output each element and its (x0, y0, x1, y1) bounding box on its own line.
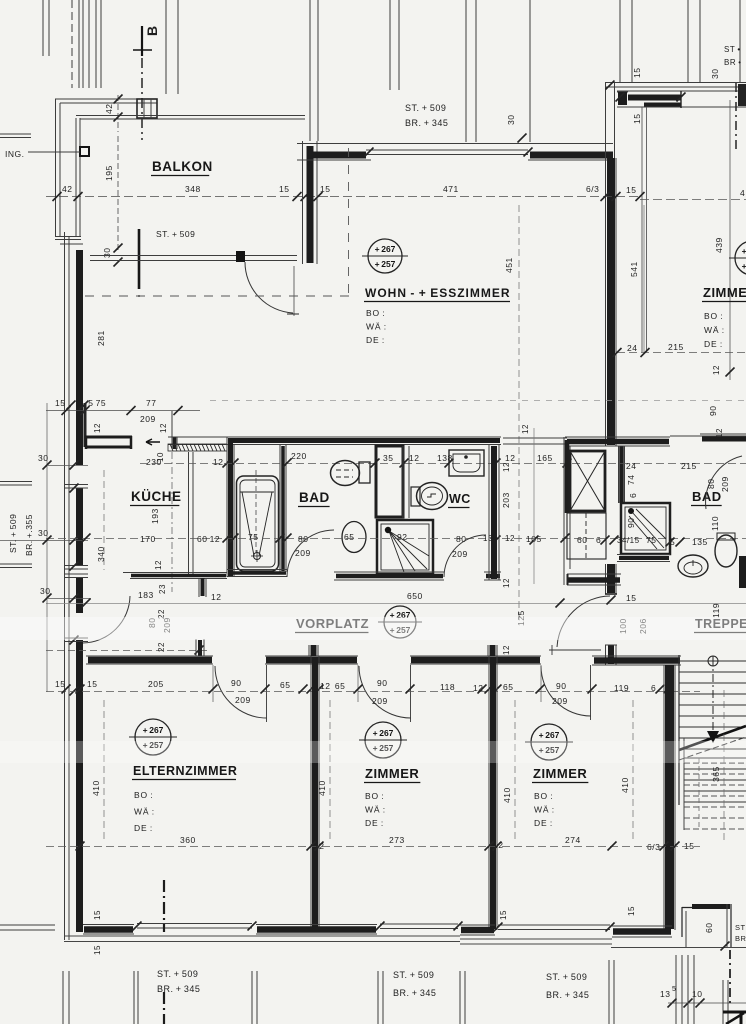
svg-text:209: 209 (552, 696, 568, 706)
svg-text:12: 12 (502, 578, 511, 588)
svg-text:119: 119 (711, 603, 721, 618)
svg-text:365: 365 (711, 766, 721, 782)
svg-text:90: 90 (377, 678, 387, 688)
svg-text:15: 15 (320, 184, 330, 194)
svg-text:BR •: BR • (724, 58, 742, 67)
svg-text:+ 257: + 257 (375, 259, 396, 269)
svg-text:12: 12 (213, 457, 223, 467)
svg-text:15: 15 (626, 593, 636, 603)
svg-text:+ 267: + 267 (539, 730, 560, 740)
svg-text:12: 12 (715, 428, 724, 438)
svg-text:209: 209 (235, 695, 251, 705)
svg-text:BR: BR (735, 934, 746, 943)
svg-text:15: 15 (93, 910, 102, 920)
svg-text:ELTERNZIMMER: ELTERNZIMMER (133, 764, 237, 778)
svg-text:6/3: 6/3 (586, 184, 599, 194)
svg-text:BR. + 345: BR. + 345 (393, 988, 436, 998)
svg-text:340: 340 (96, 546, 106, 562)
svg-text:B: B (144, 25, 160, 36)
svg-text:ST. + 509: ST. + 509 (405, 103, 446, 113)
svg-text:60: 60 (704, 923, 714, 933)
svg-text:165: 165 (537, 453, 553, 463)
svg-text:12: 12 (211, 592, 221, 602)
svg-text:274: 274 (565, 835, 581, 845)
svg-text:4: 4 (740, 188, 745, 198)
svg-text:77: 77 (146, 398, 156, 408)
svg-text:90: 90 (231, 678, 241, 688)
svg-text:135: 135 (692, 537, 708, 547)
svg-text:BR. + 345: BR. + 345 (157, 984, 200, 994)
svg-text:+ 267: + 267 (375, 244, 396, 254)
svg-text:15: 15 (632, 114, 642, 124)
svg-text:ING.: ING. (5, 149, 24, 159)
svg-text:209: 209 (140, 414, 156, 424)
svg-text:183: 183 (138, 590, 154, 600)
svg-text:15: 15 (499, 910, 508, 920)
svg-text:650: 650 (407, 591, 423, 601)
svg-text:42: 42 (104, 104, 114, 114)
svg-text:80: 80 (706, 479, 716, 489)
svg-text:205: 205 (148, 679, 164, 689)
svg-text:30: 30 (506, 115, 516, 125)
svg-text:170: 170 (140, 534, 156, 544)
svg-text:15: 15 (626, 185, 636, 195)
svg-text:BAD: BAD (299, 490, 330, 505)
svg-text:541: 541 (629, 261, 639, 277)
svg-text:209: 209 (295, 548, 311, 558)
svg-text:DE :: DE : (134, 823, 153, 833)
svg-text:220: 220 (291, 451, 307, 461)
svg-text:348: 348 (185, 184, 201, 194)
svg-text:12: 12 (521, 424, 530, 434)
svg-text:12: 12 (712, 365, 721, 375)
svg-text:209: 209 (720, 476, 730, 492)
svg-text:12: 12 (502, 645, 511, 655)
svg-text:12 65: 12 65 (320, 681, 345, 691)
svg-text:+ 267: + 267 (143, 725, 164, 735)
svg-text:90: 90 (556, 681, 566, 691)
svg-text:65: 65 (344, 532, 354, 542)
svg-text:110: 110 (710, 516, 720, 531)
svg-text:ZIMMER: ZIMMER (533, 766, 587, 781)
svg-text:119: 119 (614, 683, 629, 693)
svg-text:410: 410 (502, 787, 512, 803)
svg-text:30: 30 (40, 586, 50, 596)
svg-text:BR. + 345: BR. + 345 (546, 990, 589, 1000)
svg-text:12: 12 (93, 423, 102, 433)
svg-text:75: 75 (646, 535, 656, 545)
svg-text:34/15: 34/15 (617, 536, 640, 545)
svg-text:ZIMMER: ZIMMER (703, 285, 746, 300)
svg-text:ST •: ST • (724, 45, 741, 54)
svg-text:12: 12 (159, 423, 168, 433)
svg-text:WÄ :: WÄ : (366, 322, 387, 332)
svg-text:60: 60 (577, 535, 587, 545)
svg-text:273: 273 (389, 835, 405, 845)
svg-text:+ 267: + 267 (742, 246, 746, 256)
svg-text:DE :: DE : (704, 339, 723, 349)
svg-text:WC: WC (449, 492, 471, 506)
svg-text:451: 451 (504, 257, 514, 273)
svg-text:6: 6 (651, 683, 656, 693)
svg-text:15: 15 (632, 68, 642, 78)
svg-text:410: 410 (317, 780, 327, 796)
svg-text:22: 22 (157, 642, 166, 652)
svg-text:6/3: 6/3 (647, 842, 660, 852)
svg-text:24: 24 (627, 343, 637, 353)
svg-text:65: 65 (503, 682, 513, 692)
svg-text:439: 439 (714, 237, 724, 253)
svg-text:DE :: DE : (365, 818, 384, 828)
svg-text:DE :: DE : (366, 335, 385, 345)
svg-text:5: 5 (672, 986, 676, 993)
svg-text:118: 118 (440, 682, 455, 692)
svg-text:WÄ :: WÄ : (704, 325, 725, 335)
svg-text:15: 15 (93, 945, 102, 955)
svg-text:BO :: BO : (534, 791, 554, 801)
svg-text:75: 75 (248, 532, 258, 542)
svg-text:193: 193 (150, 508, 160, 524)
svg-text:42: 42 (62, 184, 72, 194)
svg-text:30: 30 (38, 528, 48, 538)
svg-text:ST. + 509: ST. + 509 (156, 229, 195, 239)
svg-text:90: 90 (708, 406, 718, 416)
svg-text:410: 410 (620, 777, 630, 793)
svg-text:15: 15 (55, 679, 65, 689)
svg-text:ST. + 509: ST. + 509 (8, 514, 18, 553)
svg-text:35: 35 (383, 453, 393, 463)
svg-text:215: 215 (668, 342, 684, 352)
svg-text:30: 30 (710, 69, 720, 79)
svg-text:KÜCHE: KÜCHE (131, 489, 182, 504)
svg-text:281: 281 (96, 330, 106, 346)
svg-text:209: 209 (452, 549, 468, 559)
svg-text:WÄ :: WÄ : (534, 805, 555, 815)
svg-text:ST. + 509: ST. + 509 (157, 969, 198, 979)
svg-text:BO :: BO : (704, 311, 724, 321)
svg-text:WOHN - + ESSZIMMER: WOHN - + ESSZIMMER (365, 286, 511, 300)
svg-text:ST. + 509: ST. + 509 (546, 972, 587, 982)
svg-text:30: 30 (38, 453, 48, 463)
svg-text:BO :: BO : (365, 791, 385, 801)
svg-text:195: 195 (104, 165, 114, 181)
svg-text:ST. + 509: ST. + 509 (393, 970, 434, 980)
svg-text:ZIMMER: ZIMMER (365, 766, 419, 781)
svg-text:BO :: BO : (366, 308, 386, 318)
svg-text:6: 6 (628, 493, 638, 498)
svg-text:471: 471 (443, 184, 459, 194)
svg-text:15: 15 (87, 679, 97, 689)
svg-text:WÄ :: WÄ : (134, 807, 155, 817)
svg-text:15: 15 (627, 906, 636, 916)
svg-text:15: 15 (279, 184, 289, 194)
svg-text:30: 30 (102, 248, 112, 258)
svg-text:13: 13 (660, 989, 670, 999)
svg-text:65: 65 (280, 680, 290, 690)
svg-text:DE :: DE : (534, 818, 553, 828)
svg-text:203: 203 (501, 492, 511, 508)
svg-text:BR. + 345: BR. + 345 (405, 118, 448, 128)
svg-text:215: 215 (681, 461, 697, 471)
svg-text:12: 12 (505, 453, 515, 463)
svg-text:60 12: 60 12 (197, 534, 220, 544)
svg-text:15: 15 (55, 398, 65, 408)
svg-text:ST: ST (735, 923, 746, 932)
svg-text:90: 90 (626, 518, 636, 528)
svg-text:12: 12 (502, 462, 511, 472)
svg-text:12: 12 (154, 560, 163, 570)
svg-text:WÄ :: WÄ : (365, 805, 386, 815)
svg-text:74: 74 (626, 475, 636, 485)
svg-text:360: 360 (180, 835, 196, 845)
svg-text:BR. +.355: BR. +.355 (24, 514, 34, 556)
svg-text:230: 230 (146, 457, 162, 467)
svg-text:+ 267: + 267 (373, 728, 394, 738)
svg-text:24: 24 (626, 461, 636, 471)
svg-text:12: 12 (505, 534, 515, 543)
svg-text:15: 15 (684, 841, 694, 851)
svg-text:23: 23 (158, 584, 167, 594)
svg-text:410: 410 (91, 780, 101, 796)
svg-text:BO :: BO : (134, 790, 154, 800)
svg-text:209: 209 (372, 696, 388, 706)
svg-text:+ 257: + 257 (742, 261, 746, 271)
svg-text:92: 92 (397, 532, 407, 542)
svg-text:BALKON: BALKON (152, 159, 213, 174)
svg-text:12: 12 (409, 453, 419, 463)
